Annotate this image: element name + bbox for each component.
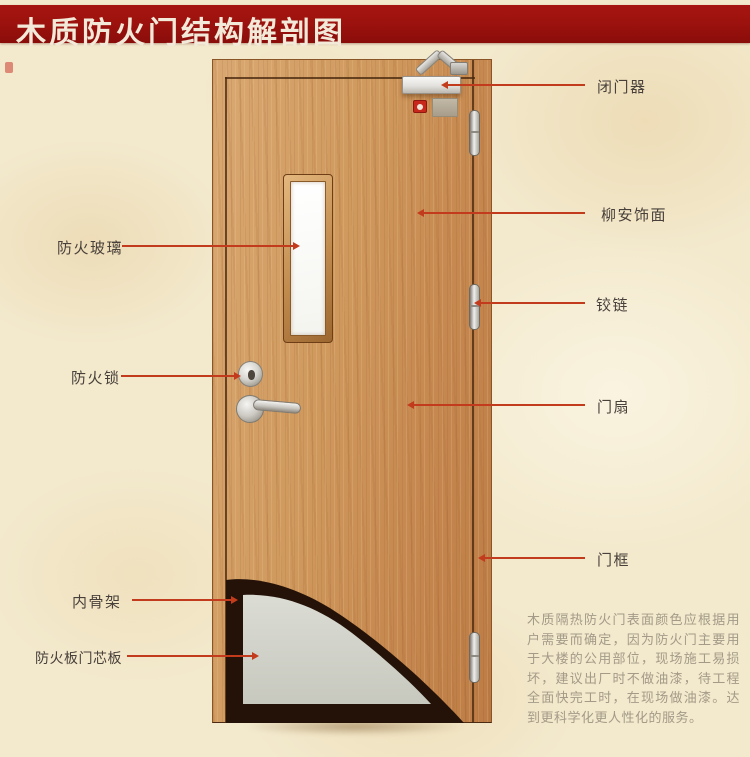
leader-line-inner-skeleton xyxy=(132,599,232,601)
hinge-top xyxy=(469,110,480,156)
cutaway-section xyxy=(226,576,464,724)
hinge-middle xyxy=(469,284,480,330)
door-closer-bracket xyxy=(450,62,468,75)
title-banner: 木质防火门结构解剖图 xyxy=(0,5,750,43)
page-title: 木质防火门结构解剖图 xyxy=(16,8,346,52)
name-plate xyxy=(432,98,458,117)
keyhole xyxy=(248,370,255,380)
callout-veneer: 柳安饰面 xyxy=(601,204,667,225)
callout-door-leaf: 门扇 xyxy=(597,396,630,417)
glass-pane xyxy=(290,181,326,336)
leader-line-hinge xyxy=(480,302,585,304)
fire-lock-cylinder xyxy=(238,361,263,387)
leader-line-fire-glass xyxy=(122,245,294,247)
hinge-seam xyxy=(470,131,479,133)
callout-fire-glass: 防火玻璃 xyxy=(57,237,123,258)
callout-fire-lock: 防火锁 xyxy=(71,367,121,388)
leader-line-door-leaf xyxy=(413,404,585,406)
hinge-seam xyxy=(470,655,479,657)
leader-line-door-frame xyxy=(484,557,585,559)
watermark-speck xyxy=(5,62,13,73)
callout-inner-skeleton: 内骨架 xyxy=(72,591,122,612)
callout-door-frame: 门框 xyxy=(597,549,630,570)
leader-line-door-closer xyxy=(447,84,585,86)
leader-line-core-board xyxy=(127,655,253,657)
callout-hinge: 铰链 xyxy=(596,294,629,315)
brand-logo-badge xyxy=(413,100,427,113)
page-background: 木质防火门结构解剖图 防火玻璃 xyxy=(0,0,750,757)
description-text: 木质隔热防火门表面颜色应根据用户需要而确定，因为防火门主要用于大楼的公用部位，现… xyxy=(527,610,740,728)
callout-door-closer: 闭门器 xyxy=(597,76,647,97)
fire-glass-window xyxy=(283,174,333,343)
door-frame-gap-right xyxy=(472,60,474,723)
callout-core-board: 防火板门芯板 xyxy=(35,648,122,668)
leader-line-veneer xyxy=(423,212,585,214)
brand-logo-dot xyxy=(417,104,423,110)
hinge-bottom xyxy=(469,632,480,683)
core-board-layer xyxy=(243,595,431,704)
leader-line-fire-lock xyxy=(121,375,235,377)
